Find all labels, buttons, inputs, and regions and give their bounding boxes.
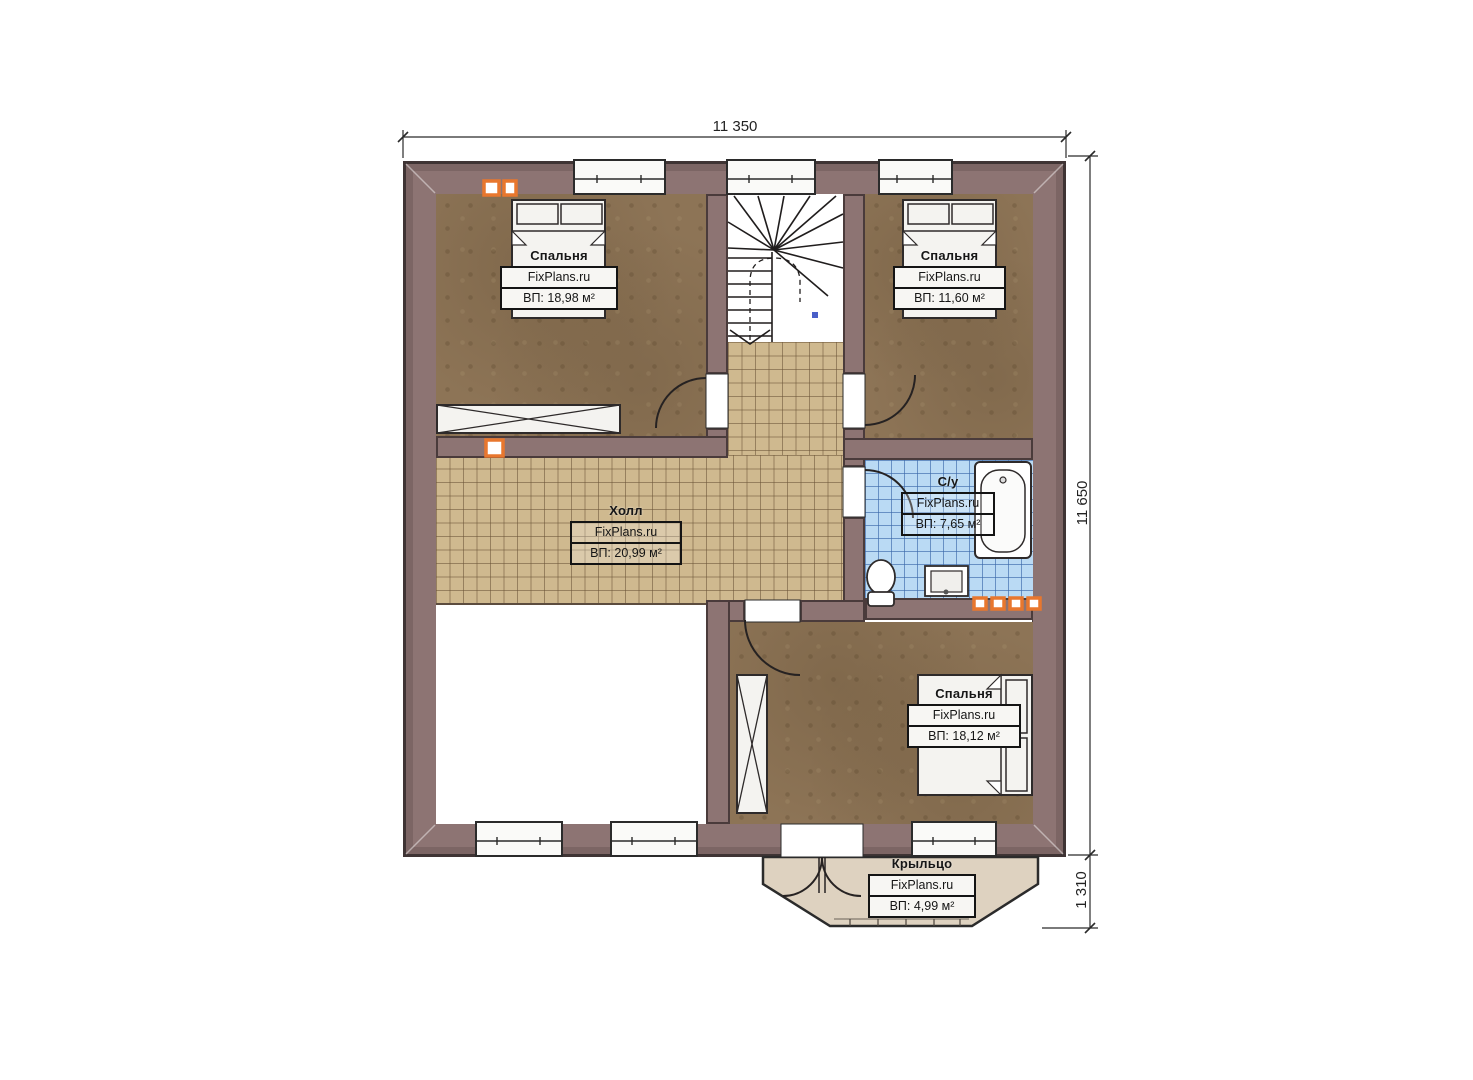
staircase [728, 196, 843, 344]
floor-plan-canvas: 11 350 11 650 1 310 Спальня FixPlans.ru … [0, 0, 1473, 1080]
toilet [867, 560, 895, 606]
area-box: ВП: 18,98 м² [500, 289, 618, 310]
label-bathroom: С/у FixPlans.ru ВП: 7,65 м² [901, 474, 995, 536]
dimension-right-label: 11 650 [1074, 466, 1092, 540]
room-title: Спальня [500, 248, 618, 263]
room-title: Спальня [893, 248, 1006, 263]
sink [925, 566, 968, 596]
stair-marker [812, 312, 818, 318]
room-title: Крыльцо [868, 856, 976, 871]
dimension-porch-label: 1 310 [1073, 858, 1091, 922]
area-box: ВП: 11,60 м² [893, 289, 1006, 310]
brand-box: FixPlans.ru [500, 266, 618, 289]
door-openings [706, 374, 865, 857]
label-bedroom-top-left: Спальня FixPlans.ru ВП: 18,98 м² [500, 248, 618, 310]
room-title: Спальня [907, 686, 1021, 701]
area-box: ВП: 18,12 м² [907, 727, 1021, 748]
window-bottom-3 [912, 822, 996, 856]
brand-box: FixPlans.ru [868, 874, 976, 897]
window-top-3 [879, 160, 952, 194]
room-title: С/у [901, 474, 995, 489]
window-bottom-2 [611, 822, 697, 856]
label-bedroom-bottom: Спальня FixPlans.ru ВП: 18,12 м² [907, 686, 1021, 748]
label-hall: Холл FixPlans.ru ВП: 20,99 м² [570, 503, 682, 565]
area-box: ВП: 4,99 м² [868, 897, 976, 918]
window-bottom-1 [476, 822, 562, 856]
label-porch: Крыльцо FixPlans.ru ВП: 4,99 м² [868, 856, 976, 918]
label-bedroom-top-right: Спальня FixPlans.ru ВП: 11,60 м² [893, 248, 1006, 310]
dimension-top-label: 11 350 [700, 118, 770, 135]
area-box: ВП: 20,99 м² [570, 544, 682, 565]
room-title: Холл [570, 503, 682, 518]
plan-overlay [0, 0, 1473, 1080]
brand-box: FixPlans.ru [893, 266, 1006, 289]
brand-box: FixPlans.ru [901, 492, 995, 515]
brand-box: FixPlans.ru [570, 521, 682, 544]
wardrobe-bottom [737, 675, 767, 813]
window-top-2 [727, 160, 815, 194]
area-box: ВП: 7,65 м² [901, 515, 995, 536]
brand-box: FixPlans.ru [907, 704, 1021, 727]
window-top-1 [574, 160, 665, 194]
wardrobe-top-left [437, 405, 620, 433]
door-swing-arcs [656, 375, 915, 896]
